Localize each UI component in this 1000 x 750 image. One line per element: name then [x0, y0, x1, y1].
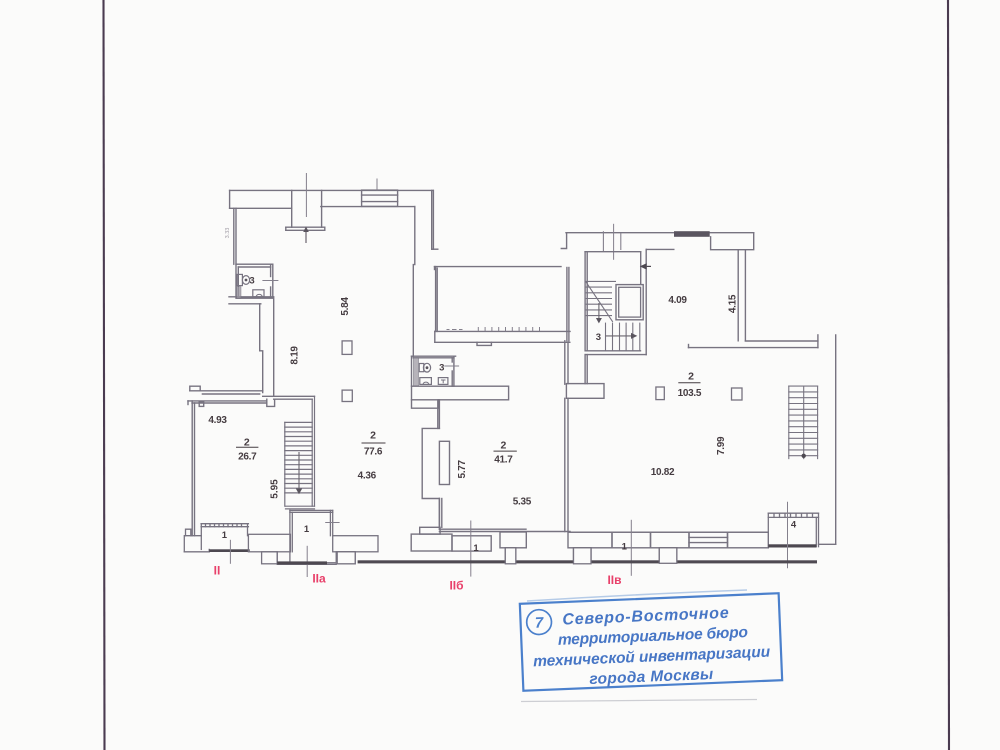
svg-text:1: 1	[622, 541, 628, 552]
svg-text:1: 1	[304, 524, 310, 535]
svg-text:77.6: 77.6	[364, 447, 383, 458]
svg-text:IIв: IIв	[607, 573, 621, 587]
svg-text:1: 1	[473, 543, 479, 554]
svg-text:4.36: 4.36	[358, 471, 377, 482]
svg-text:10.82: 10.82	[651, 467, 675, 478]
svg-text:3.33: 3.33	[225, 228, 231, 239]
svg-text:II: II	[214, 564, 221, 578]
svg-text:IIа: IIа	[312, 572, 326, 586]
svg-text:4.15: 4.15	[728, 294, 739, 313]
svg-text:IIб: IIб	[449, 579, 463, 593]
svg-text:1: 1	[222, 530, 228, 541]
svg-text:4: 4	[791, 520, 797, 531]
svg-text:3: 3	[439, 363, 444, 374]
svg-text:5.77: 5.77	[457, 459, 468, 478]
svg-text:8.19: 8.19	[289, 346, 300, 365]
svg-text:3: 3	[249, 276, 254, 287]
svg-text:5.84: 5.84	[340, 297, 351, 316]
svg-text:2: 2	[370, 430, 376, 442]
svg-text:2: 2	[500, 440, 506, 452]
svg-text:41.7: 41.7	[494, 455, 513, 466]
svg-text:26.7: 26.7	[238, 452, 257, 463]
svg-text:5.95: 5.95	[270, 479, 281, 499]
svg-text:7.99: 7.99	[716, 436, 727, 455]
svg-text:3: 3	[596, 332, 601, 343]
svg-text:103.5: 103.5	[678, 388, 702, 399]
svg-text:2: 2	[688, 370, 694, 382]
svg-text:7: 7	[535, 614, 545, 631]
svg-text:5.35: 5.35	[513, 497, 532, 508]
svg-text:4.09: 4.09	[668, 295, 687, 306]
svg-text:4.93: 4.93	[208, 415, 227, 426]
